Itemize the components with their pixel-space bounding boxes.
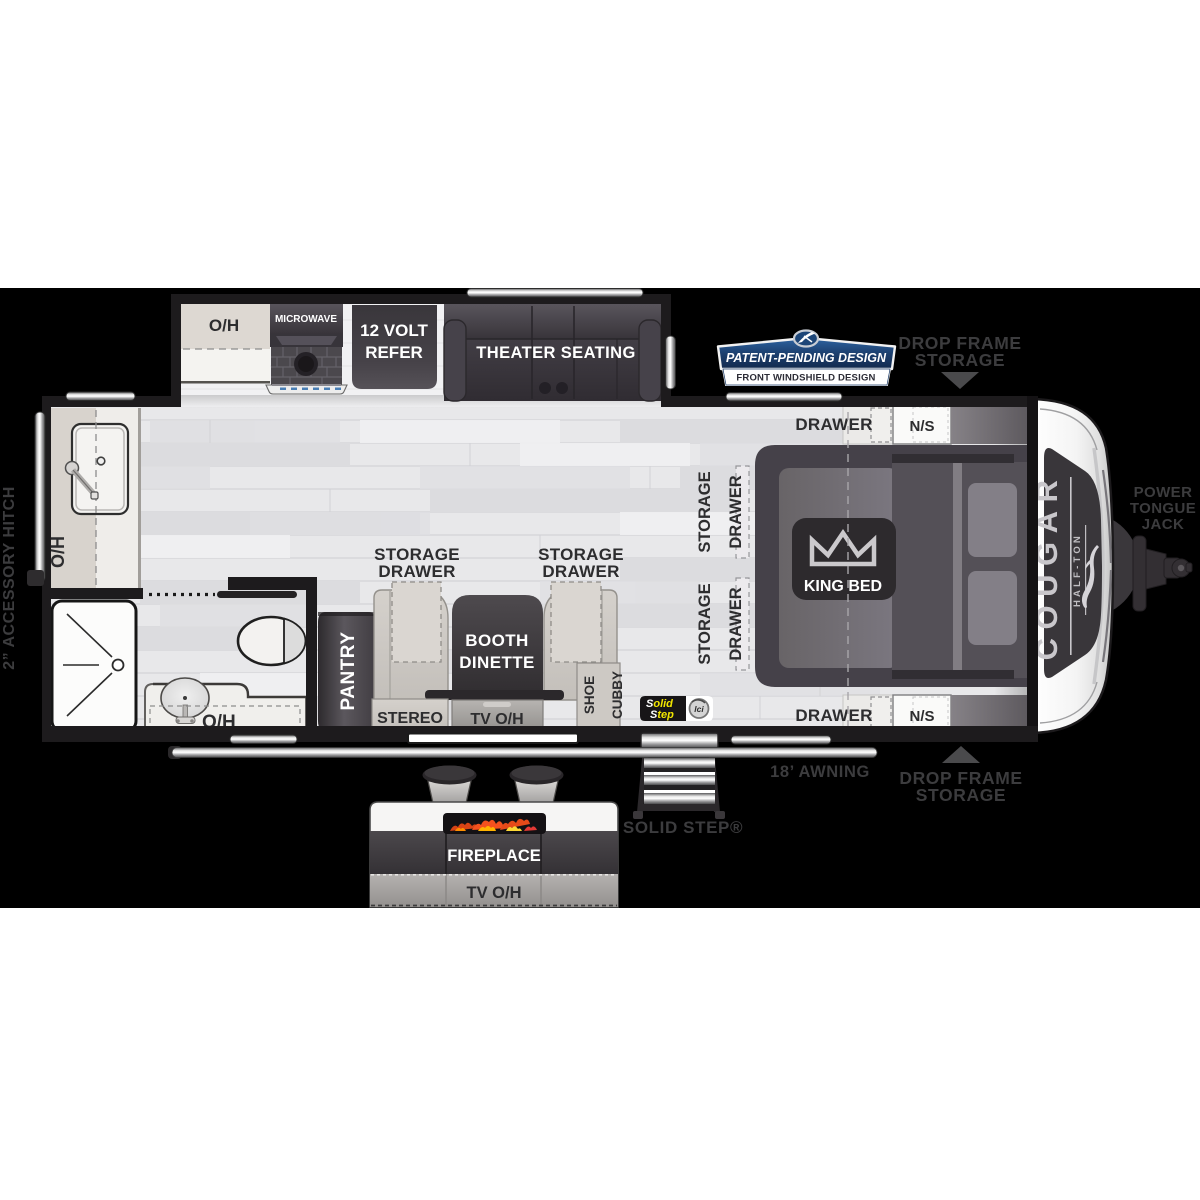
- svg-text:TV O/H: TV O/H: [466, 884, 521, 902]
- svg-text:BOOTH: BOOTH: [465, 631, 528, 650]
- svg-text:STORAGE: STORAGE: [916, 785, 1006, 805]
- svg-text:DRAWER: DRAWER: [727, 587, 745, 660]
- svg-text:Step: Step: [650, 709, 674, 721]
- svg-text:STORAGE: STORAGE: [696, 583, 714, 664]
- svg-text:lci: lci: [694, 704, 704, 714]
- svg-text:N/S: N/S: [909, 708, 934, 725]
- svg-text:SOLID STEP®: SOLID STEP®: [623, 818, 743, 837]
- svg-text:O/H: O/H: [209, 316, 239, 335]
- svg-text:12 VOLT: 12 VOLT: [360, 321, 428, 340]
- svg-text:CUBBY: CUBBY: [610, 671, 625, 719]
- svg-text:DRAWER: DRAWER: [727, 475, 745, 548]
- svg-text:STORAGE: STORAGE: [696, 471, 714, 552]
- svg-text:THEATER SEATING: THEATER SEATING: [476, 344, 635, 362]
- svg-text:SHOE: SHOE: [582, 676, 597, 714]
- svg-text:DRAWER: DRAWER: [795, 415, 872, 434]
- svg-text:DINETTE: DINETTE: [459, 653, 535, 672]
- svg-text:POWER: POWER: [1134, 484, 1193, 501]
- svg-text:DRAWER: DRAWER: [795, 706, 872, 725]
- svg-text:N/S: N/S: [909, 418, 934, 435]
- svg-text:TONGUE: TONGUE: [1130, 500, 1196, 517]
- svg-text:18’ AWNING: 18’ AWNING: [770, 763, 870, 781]
- svg-text:MICROWAVE: MICROWAVE: [275, 314, 337, 325]
- svg-text:PANTRY: PANTRY: [338, 632, 359, 711]
- svg-text:DRAWER: DRAWER: [378, 562, 455, 581]
- svg-text:TV O/H: TV O/H: [470, 711, 523, 728]
- svg-text:FIREPLACE: FIREPLACE: [447, 847, 541, 865]
- svg-text:STORAGE: STORAGE: [915, 350, 1005, 370]
- svg-text:KING BED: KING BED: [804, 578, 882, 595]
- svg-text:JACK: JACK: [1142, 516, 1184, 533]
- svg-text:REFER: REFER: [365, 343, 423, 362]
- svg-text:STEREO: STEREO: [377, 710, 443, 727]
- svg-text:PATENT-PENDING DESIGN: PATENT-PENDING DESIGN: [726, 351, 887, 365]
- svg-text:DRAWER: DRAWER: [542, 562, 619, 581]
- svg-text:2” ACCESSORY HITCH: 2” ACCESSORY HITCH: [1, 486, 18, 670]
- svg-text:HALF-TON: HALF-TON: [1072, 533, 1083, 607]
- svg-text:FRONT WINDSHIELD DESIGN: FRONT WINDSHIELD DESIGN: [736, 373, 875, 384]
